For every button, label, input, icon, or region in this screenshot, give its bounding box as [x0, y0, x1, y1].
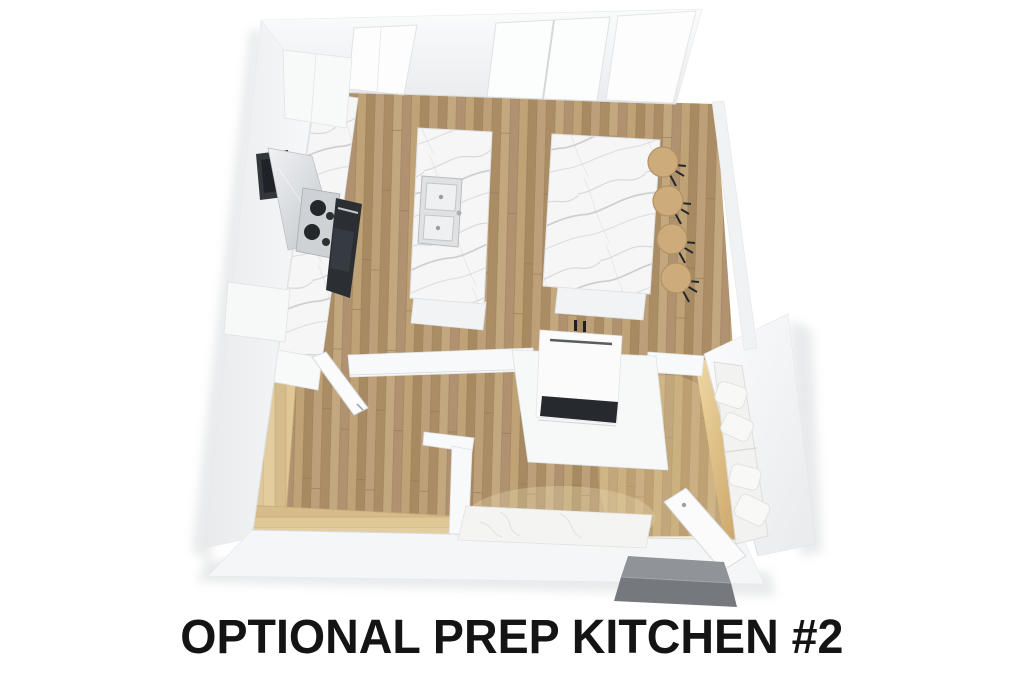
double-sink	[418, 176, 462, 247]
fireplace-flue-icon	[574, 320, 577, 331]
burner	[310, 200, 326, 216]
fireplace-flue-icon	[583, 321, 586, 332]
sink-drain	[436, 226, 440, 230]
prep-island	[410, 128, 492, 330]
sink-drain	[439, 195, 443, 199]
plan-caption-text: OPTIONAL PREP KITCHEN #2	[180, 614, 843, 662]
floor-plan-render	[0, 0, 1024, 683]
dining-island-countertop	[543, 134, 660, 294]
tall-cabinet	[283, 50, 352, 128]
door-handle	[682, 503, 686, 507]
page: OPTIONAL PREP KITCHEN #2	[0, 0, 1024, 683]
burner	[304, 224, 320, 240]
burner	[326, 212, 334, 220]
counter-cabinet	[224, 282, 290, 342]
dining-island	[543, 134, 660, 320]
plan-caption: OPTIONAL PREP KITCHEN #2	[0, 614, 1024, 662]
burner	[322, 238, 330, 246]
sink-faucet	[457, 211, 462, 216]
concrete-step	[614, 556, 737, 607]
window	[606, 11, 696, 103]
